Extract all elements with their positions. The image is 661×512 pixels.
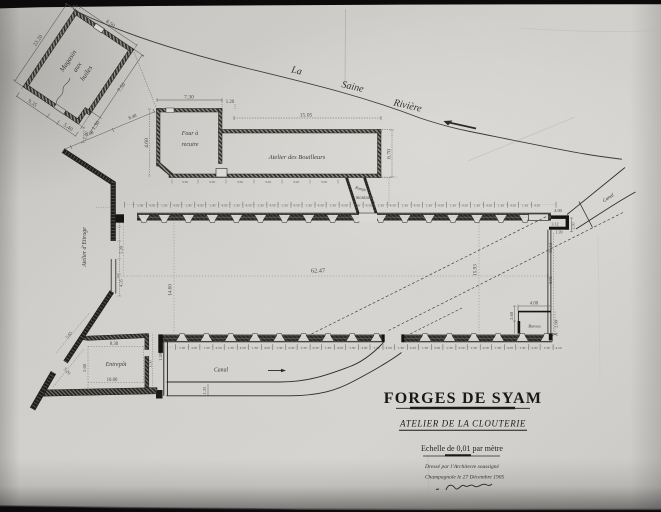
svg-text:4.50: 4.50 — [337, 346, 343, 350]
svg-text:4.50: 4.50 — [556, 346, 562, 350]
svg-text:1.30: 1.30 — [301, 346, 307, 350]
svg-text:10.00: 10.00 — [107, 378, 118, 383]
svg-text:3.50: 3.50 — [321, 180, 327, 184]
svg-text:1.30: 1.30 — [209, 204, 215, 208]
svg-text:1.30: 1.30 — [257, 204, 263, 208]
svg-text:recuire: recuire — [182, 142, 199, 148]
svg-text:1.30: 1.30 — [330, 204, 336, 208]
svg-text:5.60: 5.60 — [82, 363, 87, 372]
svg-text:4.50: 4.50 — [531, 346, 537, 350]
svg-text:4.50: 4.50 — [264, 346, 270, 350]
svg-text:4.50: 4.50 — [366, 204, 372, 208]
svg-text:1.30: 1.30 — [281, 204, 287, 208]
svg-text:4.00: 4.00 — [530, 302, 539, 307]
svg-text:4.50: 4.50 — [414, 204, 420, 208]
svg-text:1.30: 1.30 — [325, 346, 331, 350]
svg-text:2.60: 2.60 — [554, 319, 559, 328]
svg-text:Four à: Four à — [181, 131, 199, 137]
svg-text:4.50: 4.50 — [269, 204, 275, 208]
svg-text:4.50: 4.50 — [385, 346, 391, 350]
svg-text:1.30: 1.30 — [522, 204, 528, 208]
svg-text:8.30: 8.30 — [110, 342, 119, 347]
svg-text:4.50: 4.50 — [486, 204, 492, 208]
svg-text:4.50: 4.50 — [173, 204, 179, 208]
svg-text:1.30: 1.30 — [544, 346, 550, 350]
svg-text:1.30: 1.30 — [185, 204, 191, 208]
svg-text:1.30: 1.30 — [179, 346, 185, 350]
svg-text:15.05: 15.05 — [300, 113, 313, 119]
svg-text:1.50: 1.50 — [147, 360, 152, 367]
svg-text:1.20: 1.20 — [158, 352, 163, 361]
svg-text:Echelle de 0,01 par mètre: Echelle de 0,01 par mètre — [421, 444, 503, 453]
svg-text:1.30: 1.30 — [398, 346, 404, 350]
svg-text:1.30: 1.30 — [349, 346, 355, 350]
svg-text:4.50: 4.50 — [361, 346, 367, 350]
svg-text:1.20: 1.20 — [226, 100, 235, 105]
svg-text:montante: montante — [356, 196, 374, 201]
svg-text:15.93: 15.93 — [473, 264, 479, 276]
svg-text:1.30: 1.30 — [446, 346, 452, 350]
svg-text:4.50: 4.50 — [221, 204, 227, 208]
svg-text:1.30: 1.30 — [276, 346, 282, 350]
svg-text:3.50: 3.50 — [293, 180, 299, 184]
svg-text:4.50: 4.50 — [410, 346, 416, 350]
svg-text:1.30: 1.30 — [305, 204, 311, 208]
svg-text:1.30: 1.30 — [450, 204, 456, 208]
svg-text:4.50: 4.50 — [215, 346, 221, 350]
svg-text:4.50: 4.50 — [245, 204, 251, 208]
svg-text:4.50: 4.50 — [191, 346, 197, 350]
svg-text:3.12: 3.12 — [552, 222, 559, 227]
svg-text:Champagnole le 27 Décembre 190: Champagnole le 27 Décembre 1905 — [425, 475, 504, 481]
svg-text:4.50: 4.50 — [483, 346, 489, 350]
svg-text:4.50: 4.50 — [240, 346, 246, 350]
svg-text:4.50: 4.50 — [317, 204, 323, 208]
svg-text:1.30: 1.30 — [203, 346, 209, 350]
svg-text:4.50: 4.50 — [342, 204, 348, 208]
svg-text:1.30: 1.30 — [495, 346, 501, 350]
svg-text:1.30: 1.30 — [498, 204, 504, 208]
svg-text:1.30: 1.30 — [378, 204, 384, 208]
svg-text:3.50: 3.50 — [182, 180, 188, 184]
svg-text:1.30: 1.30 — [426, 204, 432, 208]
svg-text:1.30: 1.30 — [228, 346, 234, 350]
svg-text:1.30: 1.30 — [137, 204, 143, 208]
svg-text:3.50: 3.50 — [237, 180, 243, 184]
svg-text:Dressé par l’Architecte soussi: Dressé par l’Architecte soussigné — [424, 464, 500, 470]
svg-text:Atelier des Bouilleurs: Atelier des Bouilleurs — [268, 154, 326, 161]
svg-text:4.50: 4.50 — [534, 204, 540, 208]
svg-text:1.35: 1.35 — [202, 386, 207, 395]
svg-text:1.30: 1.30 — [233, 204, 239, 208]
svg-text:2.60: 2.60 — [509, 311, 514, 320]
svg-text:4.50: 4.50 — [458, 346, 464, 350]
svg-text:4.50: 4.50 — [462, 204, 468, 208]
svg-text:8.96: 8.96 — [548, 275, 553, 284]
svg-text:2.50: 2.50 — [571, 223, 576, 230]
svg-text:4.60: 4.60 — [144, 138, 150, 148]
svg-text:4.35: 4.35 — [119, 278, 124, 287]
svg-text:FORGES DE SYAM: FORGES DE SYAM — [384, 390, 542, 407]
svg-text:7.30: 7.30 — [184, 95, 194, 101]
svg-text:1.30: 1.30 — [474, 204, 480, 208]
svg-text:Atelier d’Etirage: Atelier d’Etirage — [82, 227, 88, 268]
svg-text:4.50: 4.50 — [149, 204, 155, 208]
svg-text:Bureau: Bureau — [528, 324, 540, 329]
svg-text:4.50: 4.50 — [313, 346, 319, 350]
svg-text:4.50: 4.50 — [390, 204, 396, 208]
svg-text:4.50: 4.50 — [507, 346, 513, 350]
svg-text:1.30: 1.30 — [471, 346, 477, 350]
svg-text:1.30: 1.30 — [252, 346, 258, 350]
svg-text:4.00: 4.00 — [554, 208, 563, 213]
svg-text:Entrepôt: Entrepôt — [105, 362, 127, 368]
svg-text:4.50: 4.50 — [293, 204, 299, 208]
svg-text:1.39: 1.39 — [556, 230, 563, 235]
svg-text:4.50: 4.50 — [510, 204, 516, 208]
svg-text:1.30: 1.30 — [354, 204, 360, 208]
svg-text:6.70: 6.70 — [387, 149, 393, 159]
svg-text:4.50: 4.50 — [434, 346, 440, 350]
svg-text:5.20: 5.20 — [119, 245, 124, 254]
svg-text:4.50: 4.50 — [288, 346, 294, 350]
svg-text:3.50: 3.50 — [209, 180, 215, 184]
svg-text:4.50: 4.50 — [197, 204, 203, 208]
svg-text:3.50: 3.50 — [265, 180, 271, 184]
svg-text:1.30: 1.30 — [161, 204, 167, 208]
svg-text:Canal: Canal — [214, 368, 229, 374]
svg-text:1.30: 1.30 — [519, 346, 525, 350]
svg-text:62.47: 62.47 — [311, 268, 326, 275]
svg-text:1.30: 1.30 — [402, 204, 408, 208]
svg-text:1.30: 1.30 — [422, 346, 428, 350]
svg-text:4.50: 4.50 — [438, 204, 444, 208]
svg-text:ATELIER DE LA CLOUTERIE: ATELIER DE LA CLOUTERIE — [399, 419, 526, 429]
svg-text:14.60: 14.60 — [168, 284, 174, 296]
